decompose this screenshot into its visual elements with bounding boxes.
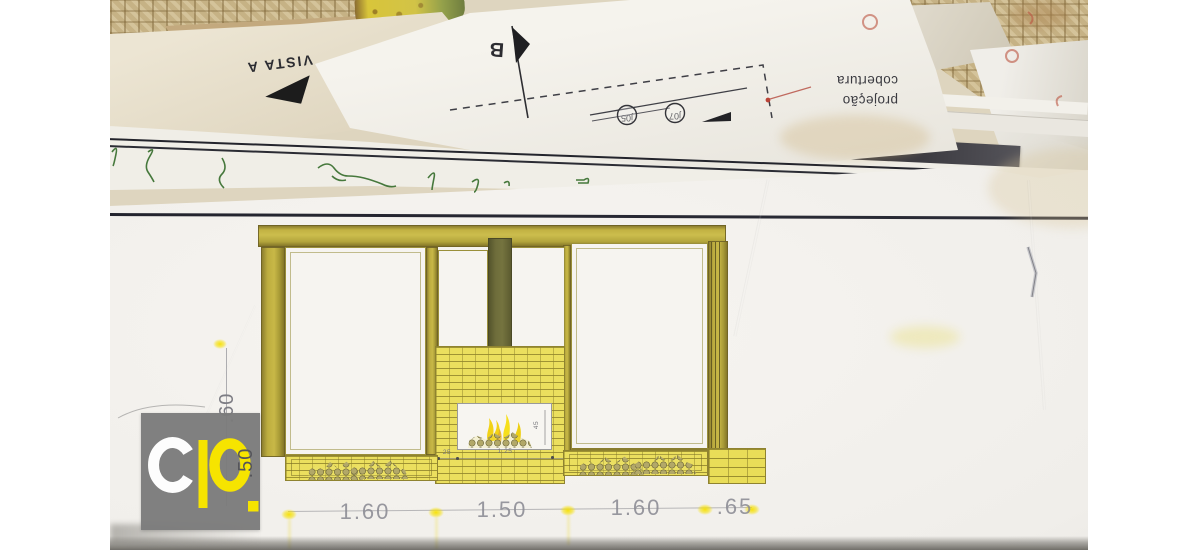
bottom-dimension-row: 1.60 1.50 1.60 .65 <box>250 493 810 538</box>
dim-0-65: .65 <box>700 494 770 520</box>
logo-dot <box>248 501 259 512</box>
window-tag: j07 <box>663 105 687 121</box>
section-marker-label: B <box>483 33 511 61</box>
photo-area: VISTA A B j05 j07 projeção cobertura <box>110 0 1088 550</box>
right-post <box>708 241 728 453</box>
dim-1-60-right: 1.60 <box>596 495 676 521</box>
roof-projection-note: projeção cobertura <box>786 58 898 110</box>
photo-of-architectural-drawings: VISTA A B j05 j07 projeção cobertura <box>0 0 1200 550</box>
firebox-width-dim: 1.25 <box>485 448 525 455</box>
left-opening <box>285 247 426 455</box>
paper-stain <box>780 115 930 160</box>
window-tag: j05 <box>615 107 639 123</box>
firebox-offset-dim: 25 <box>437 449 457 456</box>
dim-1-50: 1.50 <box>462 497 542 523</box>
opening-frame-line <box>290 252 421 450</box>
elevation-drawing: 45 25 1.25 <box>250 222 795 522</box>
dim-dot <box>456 457 459 460</box>
firebox-dim-line: 25 1.25 <box>435 450 570 464</box>
opening-frame-line <box>576 248 703 444</box>
center-left-opening <box>438 250 488 348</box>
paper-stain <box>890 326 960 348</box>
right-opening <box>571 243 708 450</box>
dim-1-60-left: 1.60 <box>325 499 405 525</box>
right-post-lines <box>711 242 720 452</box>
mat-stain <box>1010 2 1070 28</box>
right-pier <box>708 448 766 484</box>
chimney <box>488 238 512 350</box>
logo-letter-p-stem <box>199 440 208 508</box>
center-right-opening <box>511 247 565 348</box>
note-line: cobertura <box>786 70 898 90</box>
logo-letter-c <box>154 443 189 488</box>
highlight-dot <box>213 339 227 349</box>
note-line: projeção <box>786 90 898 110</box>
firebox-opening: 45 <box>457 403 552 450</box>
firebox-height-dim: 45 <box>533 415 543 435</box>
dim-0-50: .50 <box>235 441 255 485</box>
dim-dot <box>551 456 554 459</box>
right-bench <box>563 450 708 476</box>
left-bench <box>285 455 438 481</box>
